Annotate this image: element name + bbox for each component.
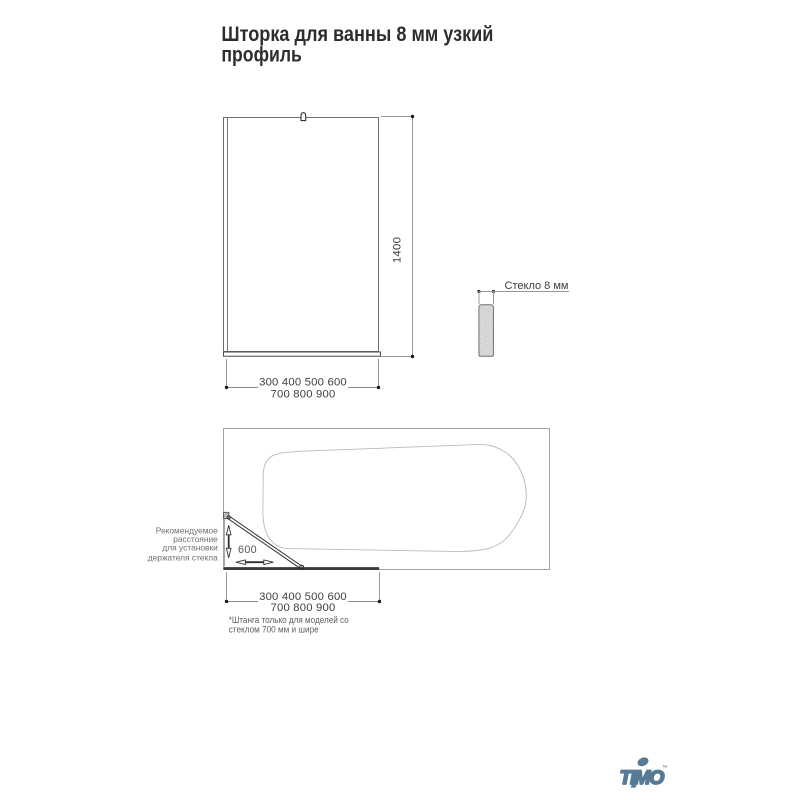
svg-text:Стекло 8 мм: Стекло 8 мм [505, 280, 569, 292]
svg-text:для установки: для установки [162, 543, 218, 553]
svg-text:300 400 500 600: 300 400 500 600 [259, 376, 347, 388]
svg-text:600: 600 [238, 544, 257, 556]
svg-text:1400: 1400 [392, 237, 404, 263]
svg-text:TIMO: TIMO [620, 767, 665, 789]
svg-text:700 800 900: 700 800 900 [270, 602, 335, 614]
svg-text:профиль: профиль [221, 43, 302, 67]
svg-text:700 800 900: 700 800 900 [270, 388, 335, 400]
svg-text:держателя стекла: держателя стекла [148, 553, 218, 563]
svg-text:стеклом 700 мм и шире: стеклом 700 мм и шире [229, 625, 319, 636]
svg-text:™: ™ [662, 764, 668, 771]
